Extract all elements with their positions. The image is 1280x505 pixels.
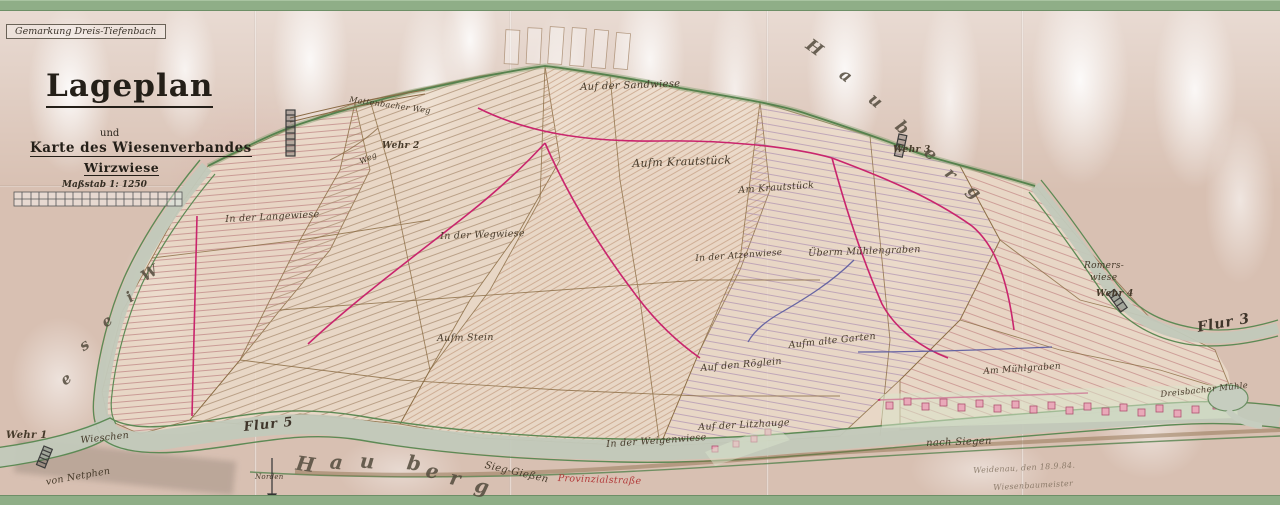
- outer-parcels: [504, 27, 630, 70]
- scale-bar: [14, 192, 182, 206]
- direction-label-nach-siegen: nach Siegen: [926, 436, 992, 449]
- weir-label-1: Wehr 1: [6, 430, 48, 441]
- north-label: Norden: [255, 473, 284, 481]
- big-letter: a: [329, 449, 344, 474]
- big-letter: H: [294, 451, 316, 477]
- field-label-romers-line2: wiese: [1090, 273, 1117, 283]
- weir-symbol-2: [286, 110, 295, 156]
- tape-edge-bottom: [0, 495, 1280, 505]
- weir-label-4: Wehr 4: [1096, 289, 1134, 299]
- scale-label: Maßstab 1: 1250: [62, 180, 147, 190]
- weir-label-2: Wehr 2: [382, 141, 420, 151]
- title-line2: Karte des Wiesenverbandes: [30, 140, 252, 157]
- map-sheet: Gemarkung Dreis-Tiefenbach Lageplan und …: [0, 0, 1280, 505]
- field-label-aufm-stein: Aufm Stein: [437, 332, 494, 344]
- gemarkung-box: Gemarkung Dreis-Tiefenbach: [6, 24, 166, 39]
- map-title: Lageplan: [46, 68, 213, 108]
- title-connector: und: [100, 128, 119, 139]
- title-line3: Wirzwiese: [84, 160, 159, 176]
- field-label-romers-line1: Romers-: [1084, 261, 1124, 271]
- tape-edge-top: [0, 0, 1280, 11]
- big-letter: u: [359, 448, 376, 473]
